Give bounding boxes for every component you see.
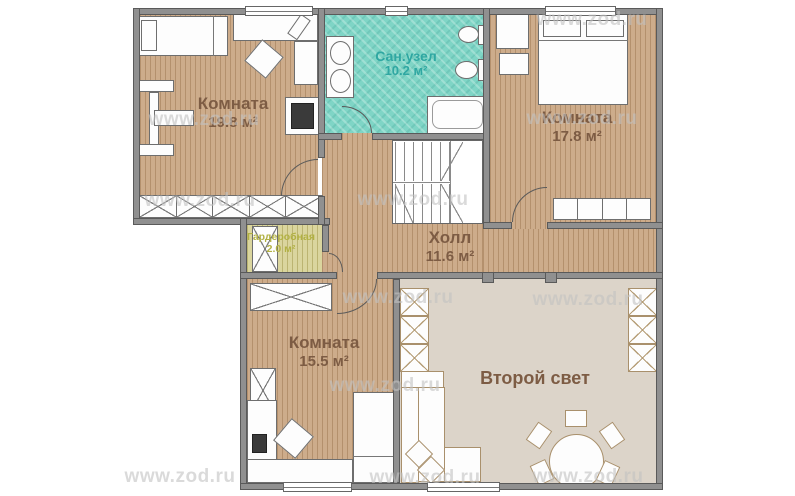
wall-bed178-bottom-right [547, 222, 663, 229]
pillow-icon [586, 20, 624, 37]
staircase-icon [392, 140, 483, 224]
dresser-icon [553, 198, 651, 220]
wardrobe-cabinet-icon [139, 195, 323, 218]
barbell-rack-top-icon [138, 80, 174, 92]
stair-divider [393, 182, 450, 183]
window-icon [427, 482, 500, 492]
stair-winder-line [441, 184, 463, 223]
window-icon [245, 6, 313, 16]
wall-hall-bottom-right [377, 272, 663, 279]
blanket-line [538, 40, 628, 41]
room-area: 17.8 м² [507, 128, 647, 145]
railing-post [482, 272, 494, 283]
label-bedroom-17-8: Комната 17.8 м² [507, 108, 647, 145]
chair-icon [565, 410, 587, 427]
room-area: 2.0 м² [240, 243, 322, 255]
label-bedroom-15-5: Комната 15.5 м² [254, 333, 394, 370]
wall-bath-bottom-left [318, 133, 342, 140]
floor-plan: Комната 19.8 м² Сан.узел 10.2 м² Комната… [0, 0, 795, 496]
label-bathroom: Сан.узел 10.2 м² [336, 48, 476, 79]
nightstand-icon [499, 53, 529, 75]
wall-bath-bed178 [483, 8, 490, 229]
tv-icon [252, 434, 267, 453]
sofa-armrest-icon [401, 371, 444, 388]
label-hall: Холл 11.6 м² [380, 228, 520, 265]
wall-bath-bottom-right [372, 133, 490, 140]
room-name: Комната [507, 108, 647, 128]
room-name: Комната [163, 94, 303, 114]
wall-wardrobe-right-upper [322, 225, 329, 252]
room-name: Второй свет [455, 368, 615, 389]
desk-return-icon [294, 41, 318, 85]
stair-winder-line [441, 142, 463, 181]
railing-icon [400, 344, 429, 372]
railing-icon [628, 344, 657, 372]
room-name: Комната [254, 333, 394, 353]
wall-outer-left-lower [240, 218, 247, 490]
closet-icon [250, 283, 332, 311]
toilet-icon [458, 26, 479, 43]
blanket-line [353, 456, 394, 457]
label-bedroom-19-8: Комната 19.8 м² [163, 94, 303, 131]
window-icon [385, 6, 408, 16]
room-area: 10.2 м² [336, 64, 476, 79]
railing-icon [400, 316, 429, 344]
wall-outer-left-upper [133, 8, 140, 225]
window-icon [545, 6, 616, 16]
label-wardrobe: Гардеробная 2.0 м² [240, 231, 322, 255]
bathtub-inner-icon [432, 100, 483, 129]
wall-outer-right [656, 8, 663, 490]
wall-bed155-secondlight [393, 279, 400, 483]
stair-edge [450, 141, 451, 223]
stair-winder-line [395, 184, 413, 223]
wall-bed198-hall [318, 196, 325, 225]
wall-hall-bottom-left [240, 272, 337, 279]
room-name: Холл [380, 228, 520, 248]
room-area: 19.8 м² [163, 114, 303, 131]
window-icon [283, 482, 352, 492]
single-bed-icon [353, 392, 394, 483]
pillow-icon [141, 20, 157, 51]
barbell-rack-bottom-icon [138, 144, 174, 156]
desk-icon [247, 459, 353, 483]
railing-icon [628, 316, 657, 344]
room-area: 11.6 м² [380, 248, 520, 265]
armchair-icon [496, 13, 529, 49]
room-name: Сан.узел [336, 48, 476, 64]
sofa-chaise-icon [444, 447, 481, 482]
label-second-light: Второй свет [455, 368, 615, 389]
bed-foot-line [213, 16, 214, 56]
railing-icon [628, 288, 657, 316]
pillow-icon [543, 20, 581, 37]
dining-table-icon [549, 434, 604, 489]
railing-icon [400, 288, 429, 316]
room-name: Гардеробная [240, 231, 322, 243]
room-area: 15.5 м² [254, 353, 394, 370]
watermark: www.zod.ru [120, 466, 240, 488]
wall-bottom-upper-left [133, 218, 330, 225]
railing-post [545, 272, 557, 283]
